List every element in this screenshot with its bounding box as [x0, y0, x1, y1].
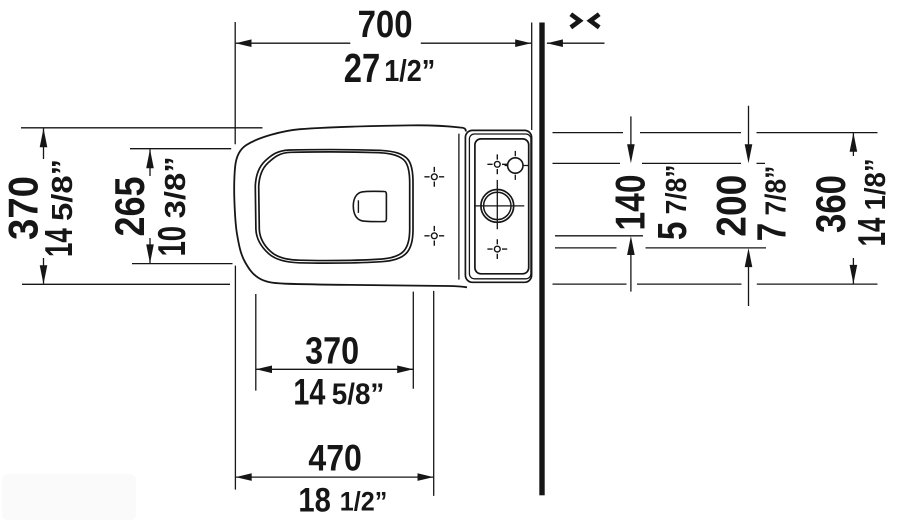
- svg-text:27: 27: [344, 45, 381, 91]
- svg-text:265: 265: [106, 177, 153, 237]
- svg-text:1/2”: 1/2”: [384, 53, 435, 88]
- svg-text:140: 140: [607, 175, 654, 231]
- svg-text:18: 18: [298, 481, 331, 519]
- svg-text:370: 370: [305, 330, 359, 372]
- svg-text:360: 360: [807, 175, 854, 233]
- svg-text:200: 200: [708, 175, 755, 237]
- svg-text:470: 470: [308, 437, 362, 479]
- svg-text:14 1/8”: 14 1/8”: [851, 158, 894, 246]
- svg-text:5/8”: 5/8”: [332, 378, 385, 411]
- svg-text:10 3/8”: 10 3/8”: [151, 156, 194, 256]
- svg-text:700: 700: [358, 4, 413, 46]
- svg-text:7 7/8”: 7 7/8”: [749, 166, 795, 242]
- svg-text:1/2”: 1/2”: [340, 486, 388, 516]
- svg-text:14: 14: [293, 371, 325, 413]
- svg-text:5 7/8”: 5 7/8”: [649, 165, 695, 241]
